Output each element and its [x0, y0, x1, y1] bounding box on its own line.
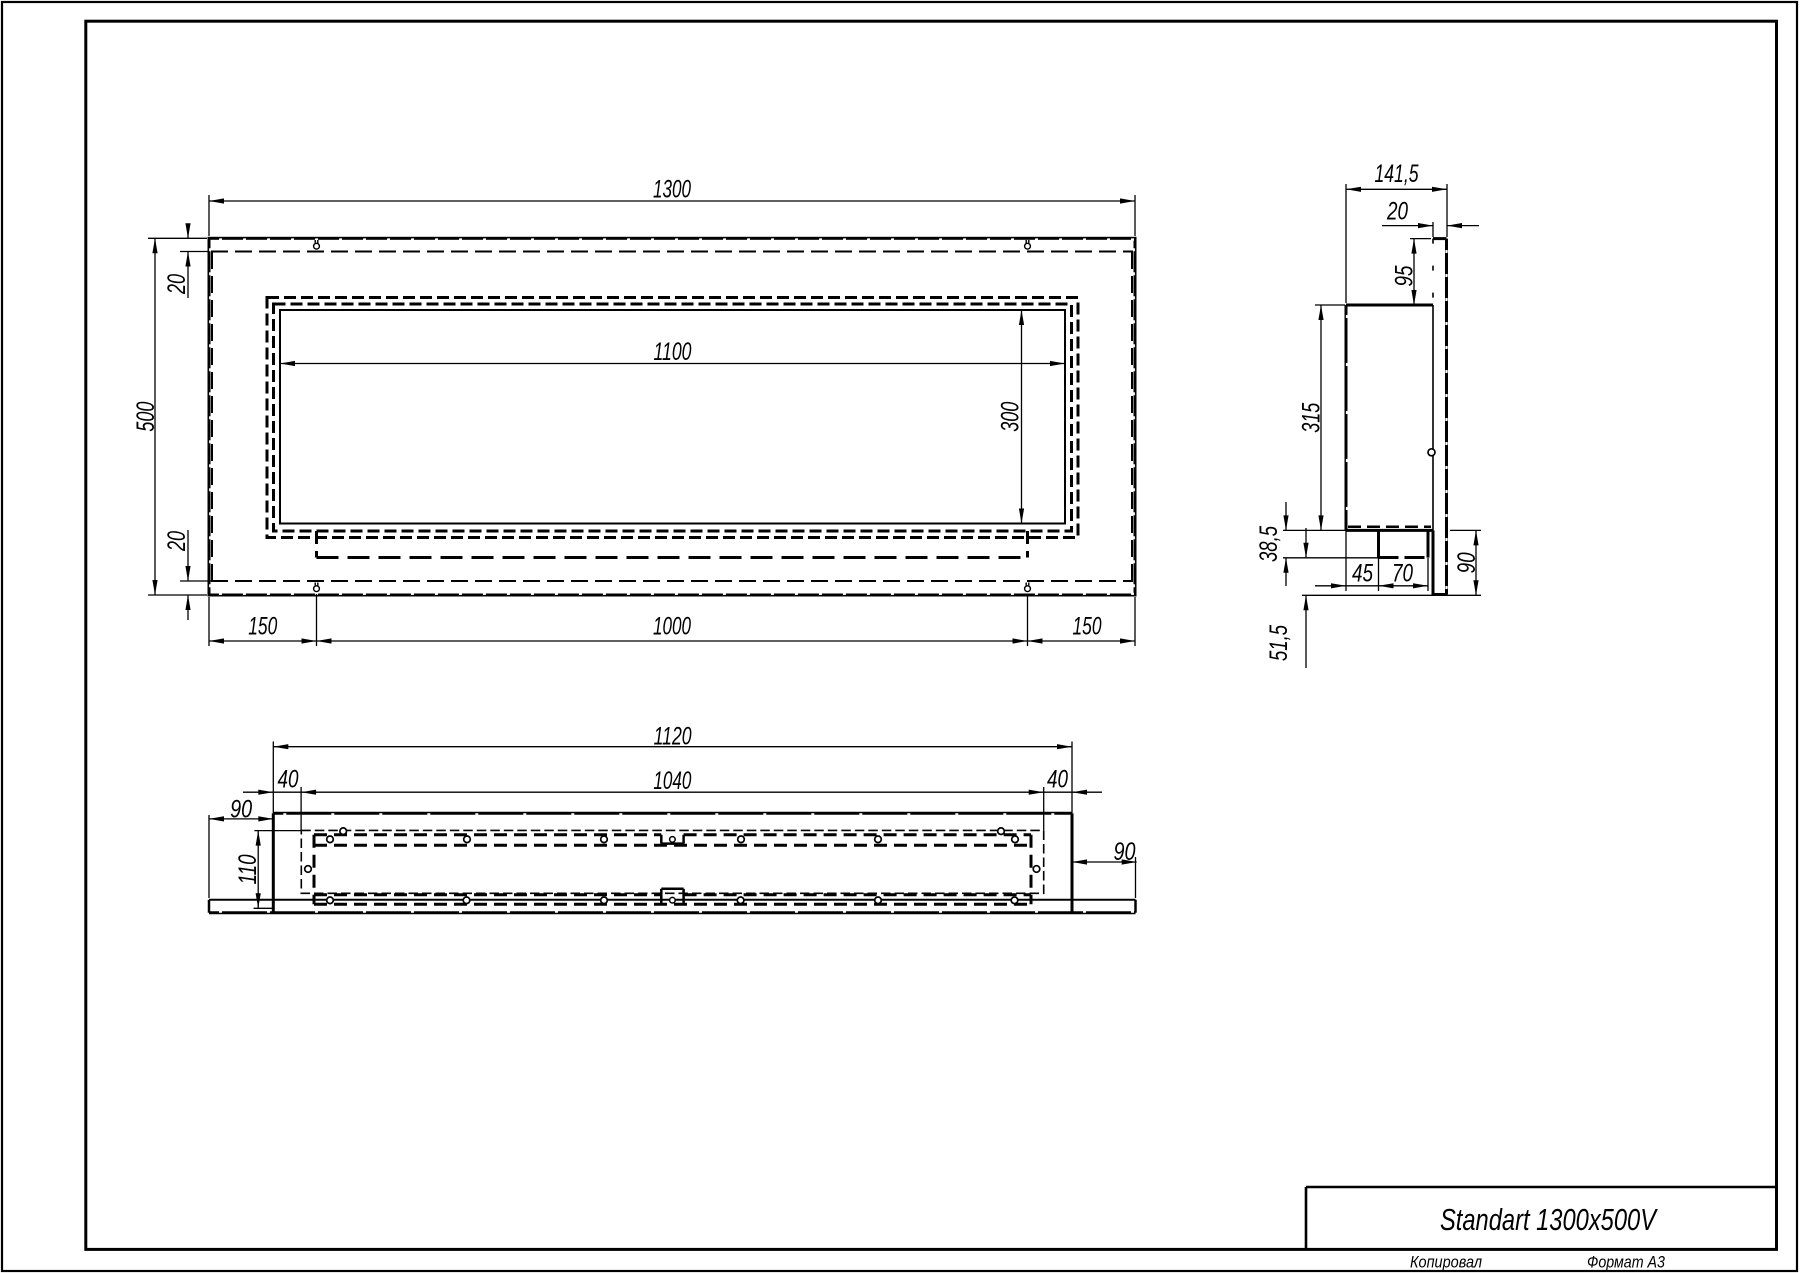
svg-text:70: 70 — [1392, 560, 1413, 588]
svg-text:141,5: 141,5 — [1375, 160, 1419, 188]
svg-text:1040: 1040 — [653, 767, 691, 795]
svg-text:90: 90 — [1453, 552, 1481, 573]
svg-text:110: 110 — [234, 854, 262, 884]
svg-text:90: 90 — [1114, 838, 1136, 866]
svg-text:1300: 1300 — [653, 176, 691, 204]
svg-text:40: 40 — [1047, 766, 1068, 794]
svg-text:300: 300 — [997, 402, 1025, 432]
svg-text:1000: 1000 — [653, 613, 691, 641]
svg-text:150: 150 — [248, 613, 277, 641]
svg-text:500: 500 — [132, 402, 160, 432]
svg-text:20: 20 — [1386, 198, 1408, 226]
svg-text:Standart 1300x500V: Standart 1300x500V — [1440, 1202, 1659, 1237]
svg-text:40: 40 — [278, 766, 299, 794]
svg-text:315: 315 — [1298, 403, 1326, 433]
svg-text:38,5: 38,5 — [1255, 526, 1283, 562]
svg-text:150: 150 — [1073, 613, 1102, 641]
svg-text:1120: 1120 — [654, 723, 692, 751]
svg-text:90: 90 — [230, 796, 252, 824]
svg-text:95: 95 — [1391, 265, 1419, 286]
svg-text:51,5: 51,5 — [1265, 625, 1293, 661]
svg-text:45: 45 — [1352, 560, 1373, 588]
svg-text:1100: 1100 — [654, 338, 692, 366]
svg-text:Формат А3: Формат А3 — [1587, 1254, 1666, 1272]
svg-text:20: 20 — [163, 531, 191, 552]
svg-text:Копировал: Копировал — [1410, 1254, 1482, 1272]
svg-text:20: 20 — [163, 274, 191, 295]
